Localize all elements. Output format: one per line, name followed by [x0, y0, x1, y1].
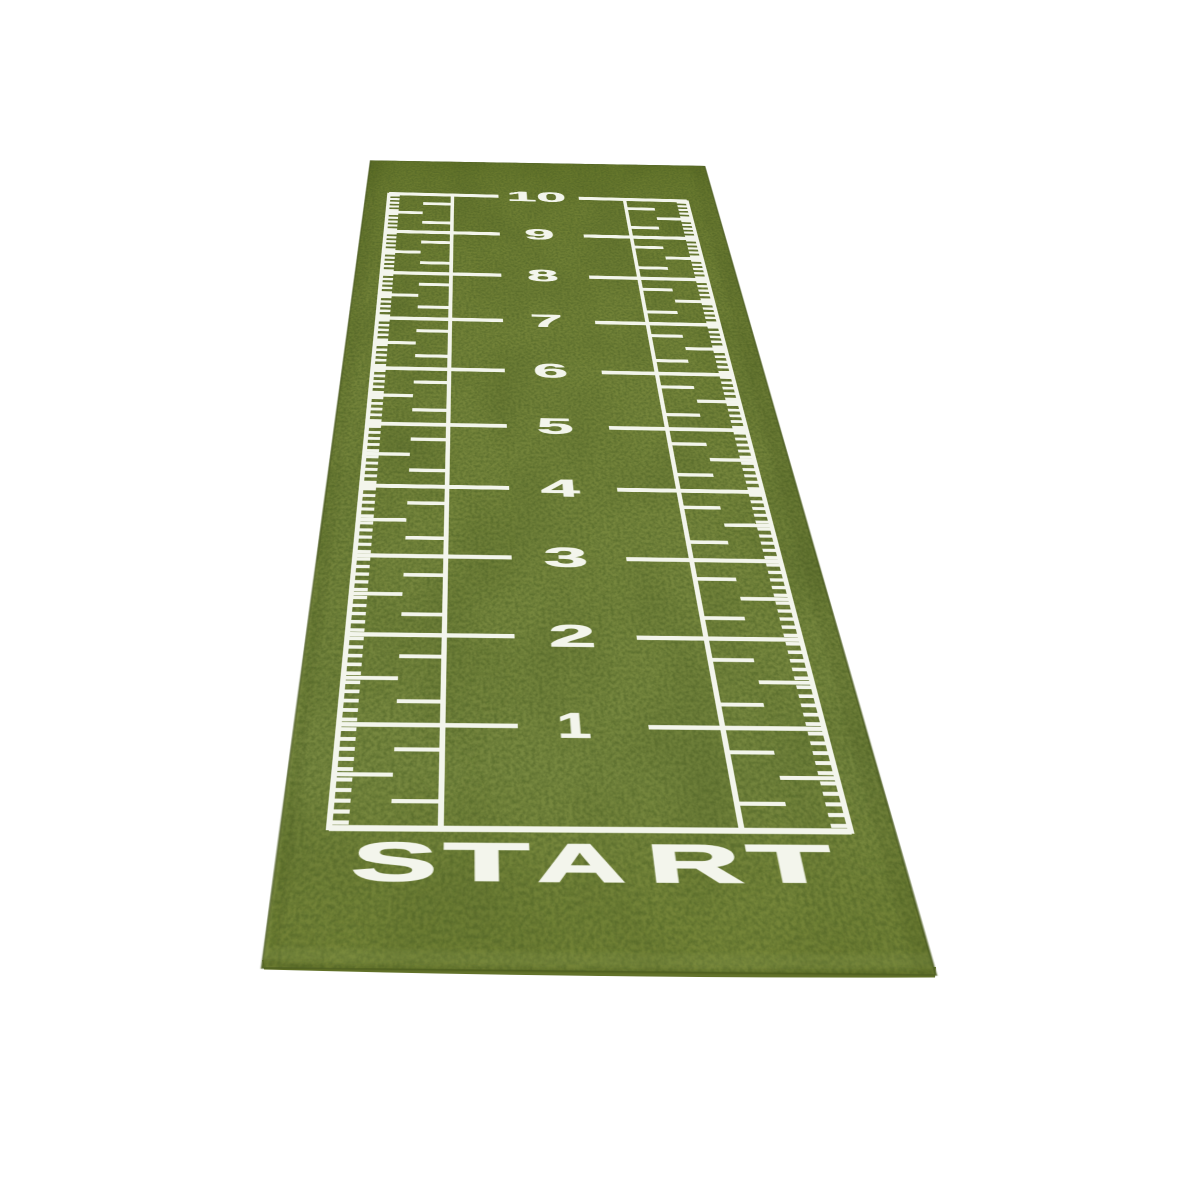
svg-text:A: A: [535, 834, 627, 894]
svg-text:T: T: [743, 836, 842, 896]
svg-text:3: 3: [543, 542, 590, 573]
svg-text:T: T: [443, 834, 532, 894]
svg-text:2: 2: [547, 618, 597, 654]
svg-text:10: 10: [506, 189, 567, 206]
svg-text:9: 9: [524, 226, 555, 243]
svg-text:4: 4: [540, 474, 581, 502]
svg-text:7: 7: [529, 311, 563, 332]
svg-text:6: 6: [533, 360, 569, 383]
svg-text:S: S: [349, 833, 437, 893]
svg-text:5: 5: [536, 414, 574, 439]
svg-text:R: R: [644, 835, 747, 895]
svg-text:1: 1: [556, 705, 593, 745]
svg-text:8: 8: [527, 266, 560, 285]
